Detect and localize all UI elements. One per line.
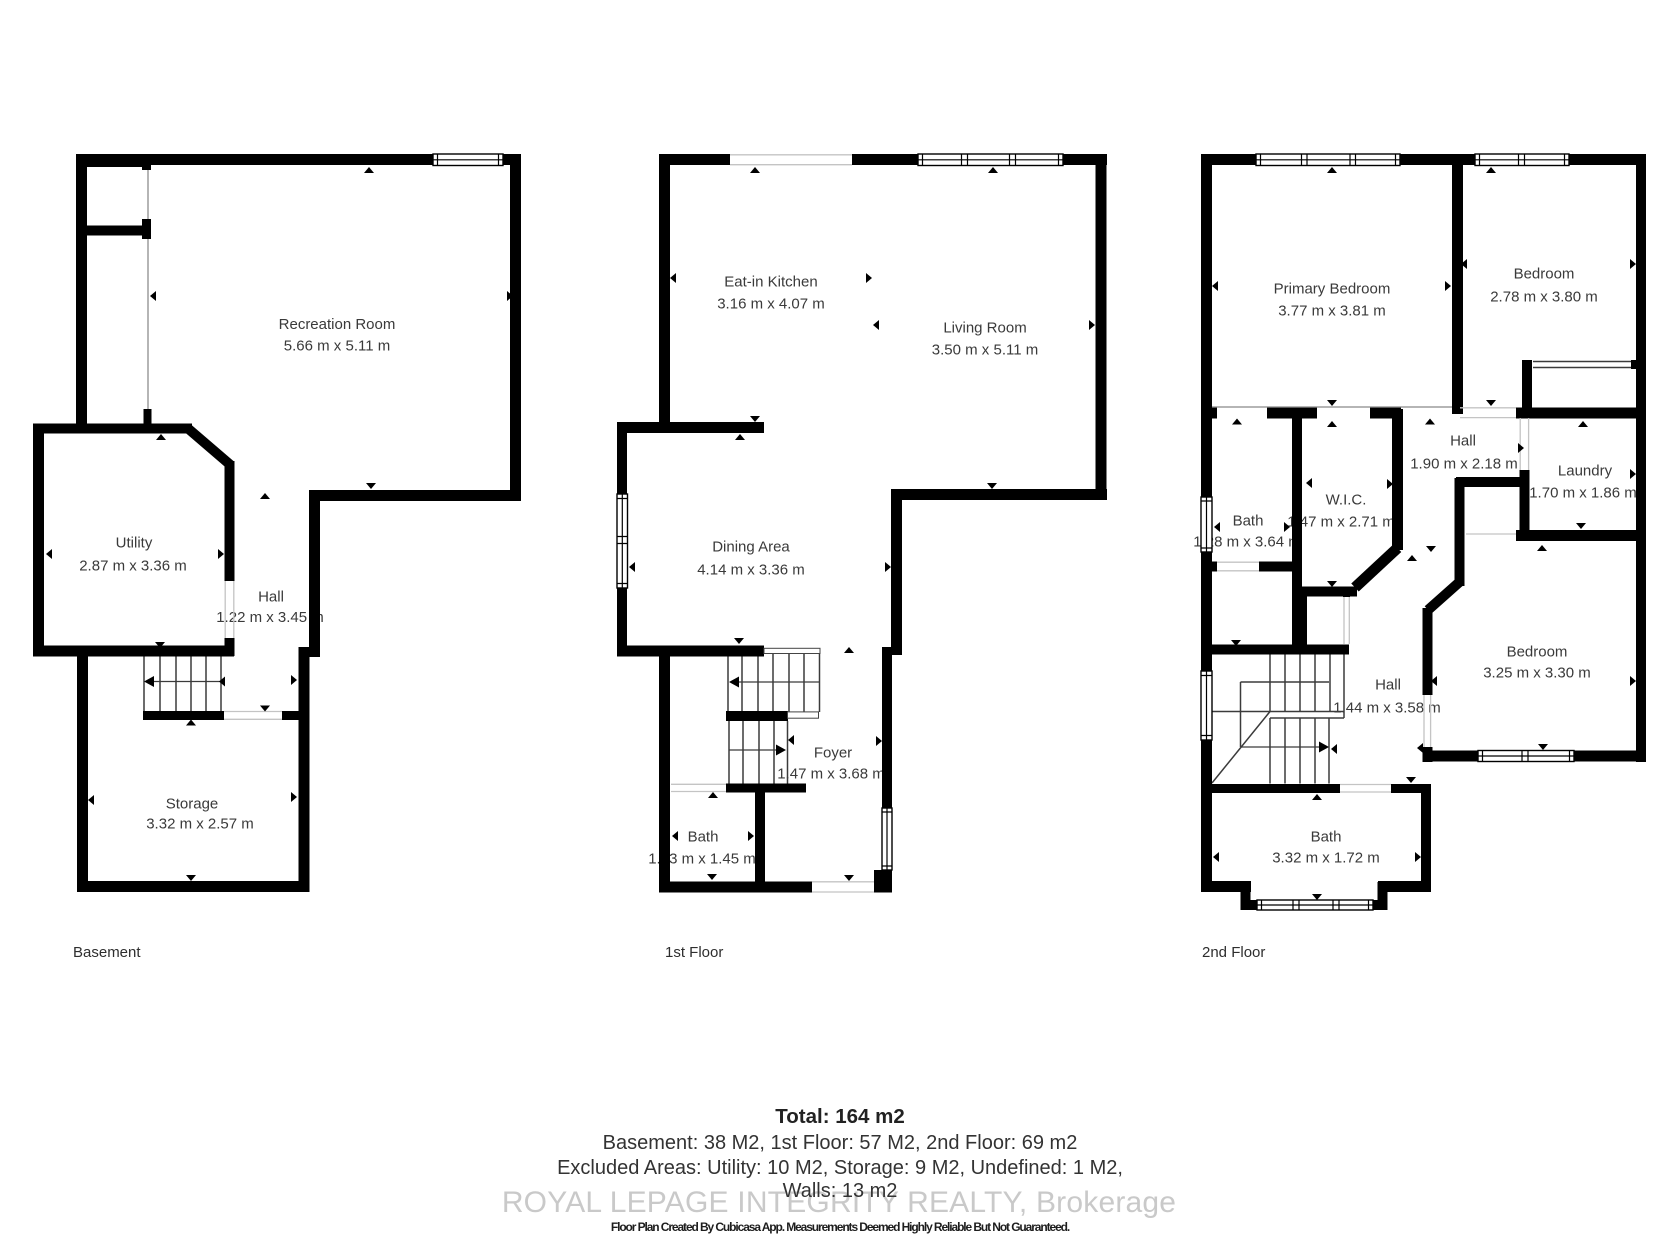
svg-text:Bath: Bath bbox=[1311, 829, 1342, 846]
svg-text:Eat-in Kitchen: Eat-in Kitchen bbox=[724, 274, 817, 291]
svg-text:Bedroom: Bedroom bbox=[1514, 266, 1575, 283]
svg-text:Bath: Bath bbox=[688, 829, 719, 846]
svg-text:1.47 m x 3.68 m: 1.47 m x 3.68 m bbox=[777, 766, 885, 783]
svg-text:Floor Plan Created By Cubicasa: Floor Plan Created By Cubicasa App. Meas… bbox=[611, 1220, 1070, 1234]
svg-text:1st Floor: 1st Floor bbox=[665, 944, 723, 961]
svg-text:3.32 m x 2.57 m: 3.32 m x 2.57 m bbox=[146, 816, 254, 833]
svg-text:Excluded Areas: Utility: 10 M2: Excluded Areas: Utility: 10 M2, Storage:… bbox=[557, 1157, 1123, 1179]
svg-text:Walls: 13 m2: Walls: 13 m2 bbox=[783, 1180, 898, 1202]
svg-text:1.90 m x 2.18 m: 1.90 m x 2.18 m bbox=[1410, 456, 1518, 473]
svg-text:3.32 m x 1.72 m: 3.32 m x 1.72 m bbox=[1272, 850, 1380, 867]
svg-text:1.22 m x 3.45 m: 1.22 m x 3.45 m bbox=[216, 609, 324, 626]
svg-text:Hall: Hall bbox=[1375, 677, 1401, 694]
svg-text:3.77 m x 3.81 m: 3.77 m x 3.81 m bbox=[1278, 303, 1386, 320]
svg-text:Storage: Storage bbox=[166, 796, 219, 813]
svg-text:Hall: Hall bbox=[1450, 433, 1476, 450]
svg-text:1.47 m x 2.71 m: 1.47 m x 2.71 m bbox=[1287, 514, 1395, 531]
svg-text:Basement: 38 M2, 1st Floor: 57: Basement: 38 M2, 1st Floor: 57 M2, 2nd F… bbox=[603, 1132, 1078, 1154]
svg-text:Primary Bedroom: Primary Bedroom bbox=[1274, 281, 1391, 298]
svg-text:1.70 m x 1.86 m: 1.70 m x 1.86 m bbox=[1529, 485, 1637, 502]
svg-text:2.87 m x 3.36 m: 2.87 m x 3.36 m bbox=[79, 558, 187, 575]
svg-text:Recreation Room: Recreation Room bbox=[279, 316, 396, 333]
svg-text:2.78 m x 3.80 m: 2.78 m x 3.80 m bbox=[1490, 289, 1598, 306]
svg-text:Foyer: Foyer bbox=[814, 745, 852, 762]
svg-text:Hall: Hall bbox=[258, 589, 284, 606]
svg-text:5.66 m x 5.11 m: 5.66 m x 5.11 m bbox=[284, 338, 390, 355]
svg-text:Basement: Basement bbox=[73, 944, 141, 961]
svg-text:Utility: Utility bbox=[116, 535, 153, 552]
svg-text:3.16 m x 4.07 m: 3.16 m x 4.07 m bbox=[717, 296, 825, 313]
svg-text:Dining Area: Dining Area bbox=[712, 539, 790, 556]
svg-text:4.14 m x 3.36 m: 4.14 m x 3.36 m bbox=[697, 562, 805, 579]
svg-text:Living Room: Living Room bbox=[943, 320, 1026, 337]
svg-text:Laundry: Laundry bbox=[1558, 463, 1613, 480]
svg-text:W.I.C.: W.I.C. bbox=[1326, 492, 1367, 509]
svg-text:2nd Floor: 2nd Floor bbox=[1202, 944, 1265, 961]
svg-text:Bedroom: Bedroom bbox=[1507, 644, 1568, 661]
svg-text:3.50 m x 5.11 m: 3.50 m x 5.11 m bbox=[932, 342, 1038, 359]
svg-text:Bath: Bath bbox=[1233, 513, 1264, 530]
svg-text:Total: 164 m2: Total: 164 m2 bbox=[775, 1105, 905, 1128]
svg-text:3.25 m x 3.30 m: 3.25 m x 3.30 m bbox=[1483, 665, 1591, 682]
